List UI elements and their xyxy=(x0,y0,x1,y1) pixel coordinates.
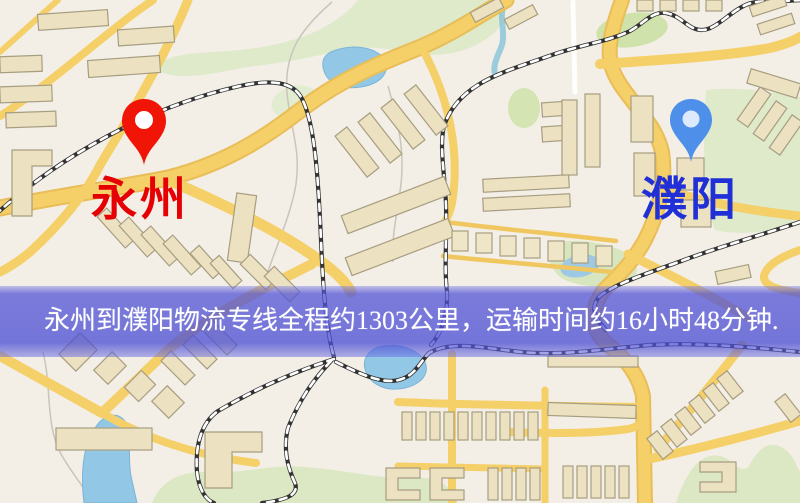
map-canvas[interactable]: 永州到濮阳物流专线全程约1303公里，运输时间约16小时48分钟. 永州 濮阳 xyxy=(0,0,800,503)
map-graphic xyxy=(0,0,800,503)
route-info-text: 永州到濮阳物流专线全程约1303公里，运输时间约16小时48分钟. xyxy=(0,307,779,336)
info-banner: 永州到濮阳物流专线全程约1303公里，运输时间约16小时48分钟. xyxy=(0,286,800,357)
